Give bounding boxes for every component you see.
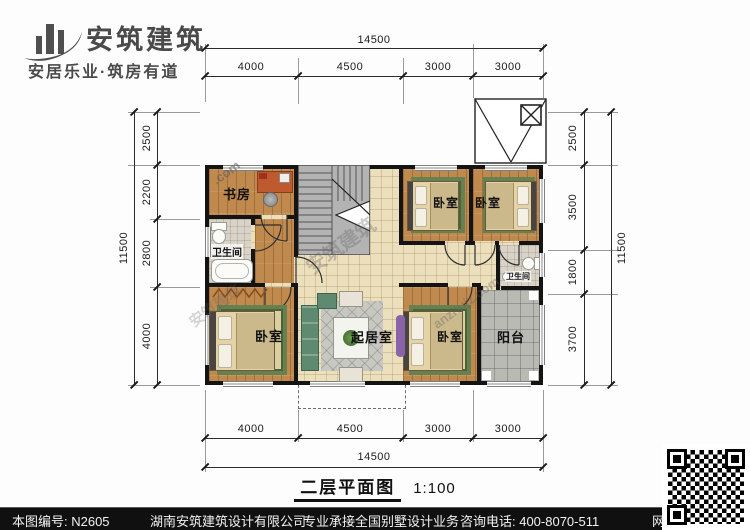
desk-item [259, 173, 267, 179]
desk-chair [263, 192, 278, 207]
dim-label: 4500 [337, 423, 363, 435]
dim-label: 14500 [357, 451, 390, 463]
toilet [212, 229, 226, 244]
caption-scale: 1:100 [413, 480, 456, 497]
sofa-corner [317, 293, 337, 309]
dim-label: 3000 [495, 61, 521, 73]
armchair [339, 291, 363, 307]
room-label-living: 起居室 [351, 327, 393, 346]
caption-title: 二层平面图 [294, 478, 401, 502]
footer-company: 湖南安筑建筑设计有限公司 [150, 511, 306, 530]
qr-finder [725, 449, 745, 469]
dim-label: 2500 [567, 125, 579, 151]
room-label-bathroom: 卫生间 [211, 244, 243, 259]
footer-bar: 本图编号: N2605 湖南安筑建筑设计有限公司 专业承接全国别墅设计业务 咨询… [0, 507, 750, 530]
dim-label: 3000 [425, 61, 451, 73]
dim-label: 4500 [337, 61, 363, 73]
dim-label: 2800 [141, 240, 153, 266]
qr-finder [667, 449, 687, 469]
dim-label: 2500 [141, 125, 153, 151]
balcony-column [529, 291, 538, 300]
room-label-balcony: 阳台 [497, 327, 525, 346]
dim-label: 11500 [616, 232, 628, 264]
room-label-study: 书房 [223, 184, 251, 203]
tv [396, 315, 405, 357]
balcony-column [482, 371, 491, 380]
laptop [279, 173, 290, 183]
floor-plan: 书房 卫生间 卧室 卧室 卧室 卫生间 起居室 卧室 阳台 .com 安筑建筑 … [205, 165, 543, 385]
brand-header: 安筑建筑 安居乐业·筑房有道 [22, 12, 222, 82]
dim-label: 4000 [238, 61, 264, 73]
qr-finder [667, 505, 687, 525]
dim-label: 4000 [238, 423, 264, 435]
dim-label: 3000 [425, 423, 451, 435]
dim-label: 14500 [357, 34, 390, 46]
brand-tagline: 安居乐业·筑房有道 [28, 58, 179, 82]
dim-label: 4000 [141, 323, 153, 349]
room-label-bedroom: 卧室 [475, 194, 501, 211]
room-label-bedroom: 卧室 [255, 326, 283, 345]
sofa [301, 305, 319, 371]
dim-label: 1800 [567, 259, 579, 285]
armchair [339, 367, 363, 382]
drawing-sheet: 安筑建筑 安居乐业·筑房有道 14500 4000 45 [0, 0, 750, 530]
brand-name: 安筑建筑 [86, 18, 206, 57]
room-label-bedroom: 卧室 [437, 328, 463, 345]
drawing-caption: 二层平面图1:100 [0, 473, 750, 498]
dim-label: 3700 [567, 326, 579, 352]
porch-dashed-outline [298, 385, 406, 409]
dim-label: 2200 [141, 179, 153, 205]
dim-label: 11500 [118, 232, 130, 264]
footer-phone: 咨询电话: 400-8070-511 [460, 511, 599, 530]
dim-label: 3500 [567, 194, 579, 220]
footer-sheet-number: 本图编号: N2605 [12, 511, 110, 530]
footer-service: 专业承接全国别墅设计业务 [303, 511, 459, 530]
balcony-column [529, 371, 538, 380]
room-label-bathroom: 卫生间 [505, 271, 531, 282]
roof-plan-sketch [474, 98, 548, 165]
room-label-bedroom: 卧室 [433, 194, 459, 211]
qr-code [662, 444, 750, 530]
dim-label: 3000 [495, 423, 521, 435]
toilet [522, 257, 535, 270]
